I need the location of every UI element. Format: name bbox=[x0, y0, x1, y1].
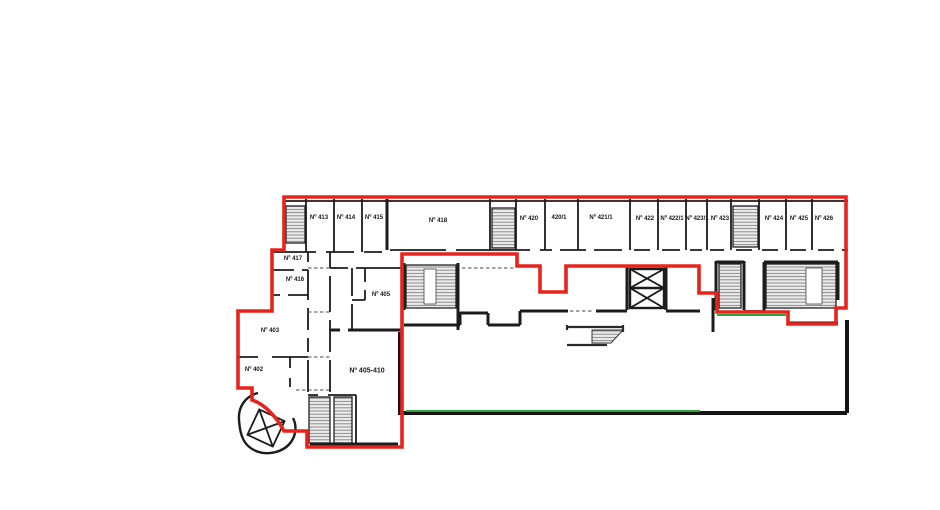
elevator-shaft-icon bbox=[630, 269, 664, 308]
room-label-425: Nº 425 bbox=[790, 216, 808, 222]
room-label-414: Nº 414 bbox=[337, 215, 355, 221]
spiral-elevator-pod-icon bbox=[239, 393, 296, 453]
room-label-423: Nº 423 bbox=[711, 216, 729, 222]
room-label-426: Nº 426 bbox=[815, 216, 833, 222]
room-label-424: Nº 424 bbox=[765, 216, 783, 222]
room-label-405-410: Nº 405-410 bbox=[349, 368, 384, 375]
room-label-422: Nº 422 bbox=[636, 216, 654, 222]
room-label-416: Nº 416 bbox=[286, 277, 304, 283]
room-label-421-1: Nº 421/1 bbox=[589, 215, 612, 221]
room-label-415: Nº 415 bbox=[365, 215, 383, 221]
room-label-422-1: Nº 422/1 bbox=[660, 216, 683, 222]
atrium-walls bbox=[398, 320, 847, 413]
floor-plan-drawing bbox=[0, 0, 940, 510]
stairs-symbol-icon bbox=[567, 325, 623, 345]
room-label-403: Nº 403 bbox=[261, 328, 279, 334]
room-label-423-1: Nº 423/1 bbox=[685, 216, 708, 222]
staircase-top-left-icon bbox=[286, 206, 305, 243]
staircase-central-icon bbox=[406, 265, 456, 308]
room-label-402: Nº 402 bbox=[245, 367, 263, 373]
room-label-418: Nº 418 bbox=[429, 218, 447, 224]
room-label-405: Nº 405 bbox=[372, 292, 390, 298]
room-label-417: Nº 417 bbox=[284, 256, 302, 262]
staircase-right-large-icon bbox=[766, 264, 836, 308]
room-label-420: Nº 420 bbox=[520, 216, 538, 222]
room-label-420-1: 420/1 bbox=[551, 215, 566, 221]
elevator-cab-icon bbox=[247, 409, 284, 446]
room-label-413: Nº 413 bbox=[310, 215, 328, 221]
staircase-right-small-icon bbox=[719, 264, 741, 308]
staircase-bottom-left-icon bbox=[309, 397, 352, 443]
staircase-top-mid-icon bbox=[492, 208, 515, 248]
staircase-top-right-icon bbox=[733, 206, 758, 247]
floor-plan-canvas: Nº 413 Nº 414 Nº 415 Nº 418 Nº 420 420/1… bbox=[0, 0, 940, 510]
